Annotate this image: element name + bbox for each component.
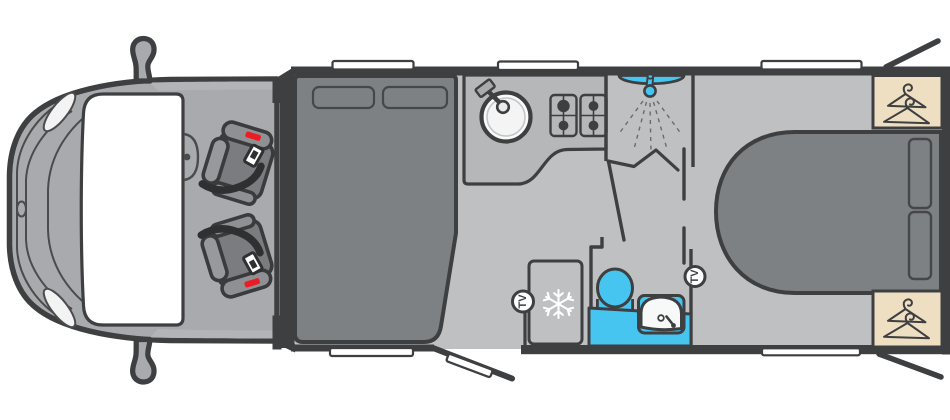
svg-text:TV: TV <box>517 294 529 309</box>
svg-text:TV: TV <box>689 269 701 284</box>
